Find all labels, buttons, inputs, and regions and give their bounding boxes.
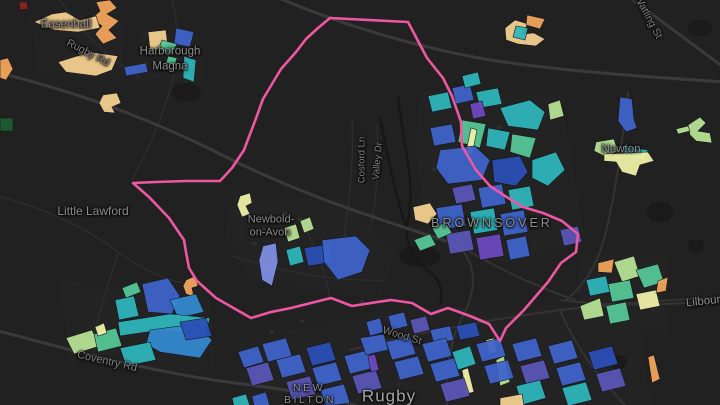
label-harborough-magna-line2: Magna bbox=[152, 61, 187, 73]
area-polygon[interactable] bbox=[428, 92, 452, 112]
area-polygon[interactable] bbox=[452, 84, 474, 104]
area-polygon[interactable] bbox=[608, 280, 634, 302]
area-polygon[interactable] bbox=[452, 184, 476, 204]
area-polygon[interactable] bbox=[526, 15, 545, 29]
area-polygon[interactable] bbox=[648, 355, 660, 383]
label-newbold-line2: on-Avon bbox=[250, 228, 291, 239]
label-brownsover: BROWNSOVER bbox=[431, 217, 553, 230]
area-polygon[interactable] bbox=[506, 236, 530, 260]
label-new-bilton-line1: NEW bbox=[293, 383, 325, 394]
area-polygon[interactable] bbox=[606, 302, 630, 324]
area-polygon[interactable] bbox=[688, 117, 712, 143]
area-polygon[interactable] bbox=[476, 234, 504, 260]
map-canvas[interactable]: Easenhall Harborough Magna Little Lawfor… bbox=[0, 0, 720, 405]
label-cosford-ln: Cosford Ln bbox=[357, 137, 367, 183]
label-easenhall: Easenhall bbox=[41, 19, 92, 31]
label-newton: Newton bbox=[602, 144, 641, 156]
label-rugby: Rugby bbox=[362, 388, 416, 405]
area-polygon[interactable] bbox=[618, 97, 637, 132]
area-polygon[interactable] bbox=[180, 318, 212, 340]
label-newbold-line1: Newbold- bbox=[248, 215, 294, 226]
area-polygon[interactable] bbox=[19, 2, 28, 10]
label-little-lawford: Little Lawford bbox=[57, 205, 128, 217]
area-polygon[interactable] bbox=[586, 276, 610, 296]
area-polygon[interactable] bbox=[462, 72, 481, 88]
label-harborough-magna-line1: Harborough bbox=[140, 46, 201, 58]
label-new-bilton-line2: BILTON bbox=[284, 395, 336, 405]
area-polygon[interactable] bbox=[0, 118, 13, 131]
area-polygon[interactable] bbox=[430, 124, 456, 146]
area-polygon[interactable] bbox=[676, 126, 690, 134]
